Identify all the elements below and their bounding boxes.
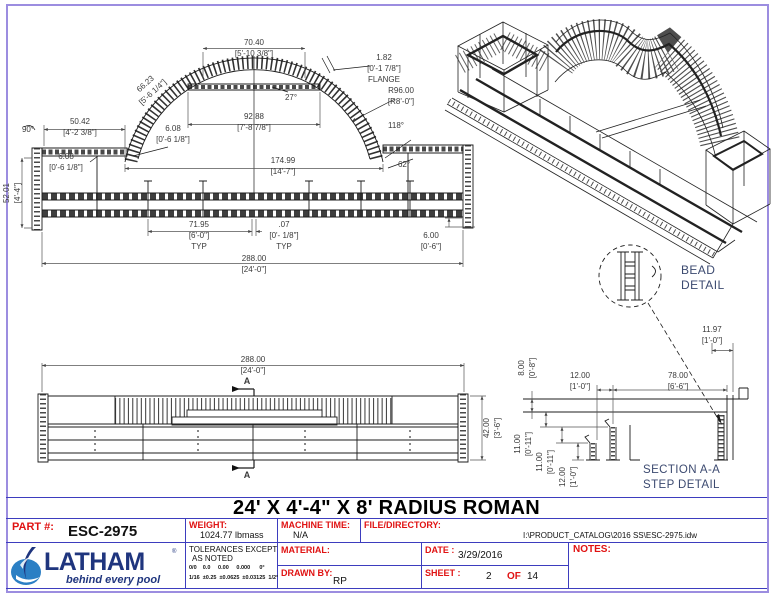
tolerance-row-1: 0/0 0.0 0.00 0.000 0°	[189, 565, 265, 571]
machine-time-label: MACHINE TIME:	[281, 520, 350, 530]
part-number-label: PART #:	[12, 521, 54, 533]
dim-section-run: 78.00[6'-6"]	[668, 370, 688, 392]
drawn-by-label: DRAWN BY:	[281, 568, 332, 578]
section-marker-a-bottom: A	[244, 470, 251, 481]
sheet-of-label: OF	[507, 571, 521, 582]
sheet-total-value: 14	[527, 571, 538, 582]
section-marker-a-top: A	[244, 376, 251, 387]
file-directory-label: FILE/DIRECTORY:	[364, 520, 441, 530]
drawn-by-value: RP	[333, 576, 347, 587]
weight-value: 1024.77 lbmass	[200, 530, 264, 540]
dim-bottom-overall-width: 288.00[24'-0"]	[241, 354, 266, 376]
title-block-line	[6, 497, 767, 498]
dim-section-rise-2: 11.00[0'-11"]	[534, 450, 556, 474]
dim-front-radius: R96.00[R8'-0"]	[388, 85, 414, 107]
dim-front-overall-width: 288.00[24'-0"]	[242, 253, 267, 275]
title-block-line	[360, 518, 361, 542]
latham-logo-swoosh-icon	[10, 545, 46, 587]
title-block-line	[277, 565, 568, 566]
date-label: DATE :	[425, 545, 454, 555]
dim-front-joint-gap: .07[0'- 1/8"]TYP	[269, 219, 298, 252]
dim-section-rise-1: 11.00[0'-11"]	[512, 432, 534, 456]
title-block-line	[185, 518, 186, 589]
dim-bottom-depth: 42.00[3'-6"]	[481, 418, 503, 438]
dim-front-post-spacing: 71.95[6'-0"]TYP	[189, 219, 209, 252]
title-block-line	[6, 542, 767, 543]
title-block-line	[568, 542, 569, 589]
title-block-line	[6, 588, 767, 589]
latham-logo-wordmark: LATHAM	[44, 548, 145, 577]
dim-section-deck: 8.00[0'-8"]	[516, 358, 538, 378]
angle-118: 118°	[388, 120, 404, 131]
iso-view-linework	[445, 20, 770, 264]
dim-front-flange: 1.82[0'-1 7/8"]FLANGE	[367, 52, 401, 85]
bottom-view-linework	[38, 386, 468, 471]
dim-front-arch-span: 174.99[14'-7"]	[271, 155, 296, 177]
dim-front-plate-width: 92.88[7'-8 7/8"]	[237, 111, 271, 133]
dim-section-rise-3: 12.00[1'-0"]	[557, 467, 579, 487]
section-detail-linework	[523, 388, 748, 460]
drawing-title: 24' X 4'-4" X 8' RADIUS ROMAN	[6, 498, 767, 518]
sheet-number-value: 2	[486, 571, 492, 582]
bead-detail-label: BEADDETAIL	[681, 263, 725, 292]
sheet-label: SHEET :	[425, 568, 461, 578]
section-detail-dim-lines	[532, 343, 733, 460]
notes-label: NOTES:	[573, 544, 611, 555]
dim-front-height: 52.01[4'-4"]	[1, 183, 23, 203]
bead-detail-circle	[599, 245, 661, 307]
tolerances-label-line1: TOLERANCES EXCEPT	[189, 545, 277, 554]
front-view-linework	[24, 56, 473, 230]
file-directory-value: I:\PRODUCT_CATALOG\2016 SS\ESC-2975.idw	[363, 531, 697, 540]
drawing-sheet: 70.40[5'-10 3/8"] 66.23[5'-6 1/4"] 1.82[…	[0, 0, 774, 597]
section-detail-label: SECTION A-ASTEP DETAIL	[643, 463, 720, 492]
bead-leader-line	[648, 303, 720, 422]
date-value: 3/29/2016	[458, 550, 503, 561]
latham-logo-registered-mark: ®	[172, 549, 176, 555]
material-label: MATERIAL:	[281, 545, 330, 555]
angle-90: 90°	[22, 124, 34, 135]
angle-27: 27°	[285, 92, 297, 103]
dim-front-bench-thickness: 6.08[0'-6 1/8"]	[49, 151, 83, 173]
part-number-value: ESC-2975	[68, 523, 137, 540]
dim-front-end-height: 6.00[0'-6"]	[421, 230, 441, 252]
tolerances-label-line2: AS NOTED	[192, 554, 233, 563]
weight-label: WEIGHT:	[189, 520, 227, 530]
angle-62: 62°	[398, 159, 410, 170]
latham-logo-tagline: behind every pool	[66, 574, 160, 586]
tolerance-row-2: 1/16 ±0.25 ±0.0625 ±0.03125 1/2°	[189, 575, 278, 581]
title-block-line	[421, 542, 422, 589]
dim-front-flange-leader: 6.08[0'-6 1/8"]	[156, 123, 190, 145]
section-cut-marker-bottom	[238, 460, 254, 468]
dim-front-top-span: 70.40[5'-10 3/8"]	[235, 37, 273, 59]
section-cut-marker-top	[238, 389, 254, 396]
dim-section-tread-width: 12.00[1'-0"]	[570, 370, 590, 392]
dim-front-bench-width: 50.42[4'-2 3/8"]	[63, 116, 97, 138]
title-block-line	[6, 518, 767, 519]
machine-time-value: N/A	[293, 530, 308, 540]
front-view-dim-lines	[22, 49, 475, 268]
dim-section-tread-top: 11.97[1'-0"]	[702, 324, 722, 346]
